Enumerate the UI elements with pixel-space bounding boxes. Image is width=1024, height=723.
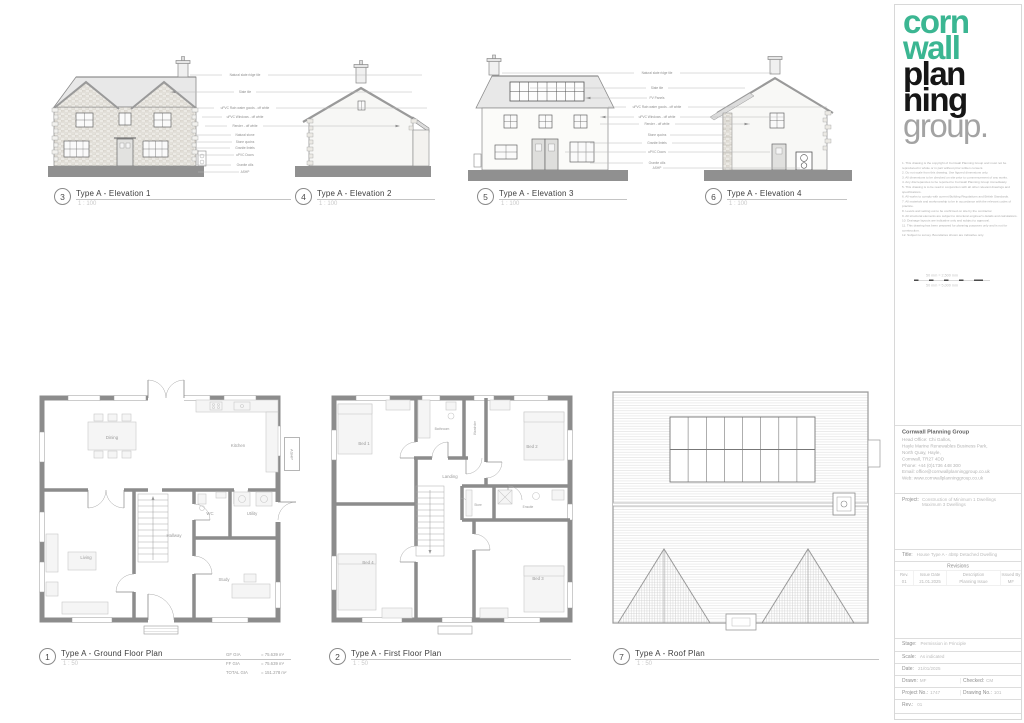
annotation-label: Stone quoins bbox=[648, 133, 667, 137]
elevation-annotations-right: Natural slate ridge tile Slate tile PV P… bbox=[500, 58, 900, 183]
scale-bar-text: 50 mm = 5,000 mm bbox=[904, 283, 980, 288]
roof-plan bbox=[604, 386, 889, 636]
annotation-label: Slate tile bbox=[239, 90, 251, 94]
area-value: = 75.639 m² bbox=[261, 652, 284, 657]
scale-value: As indicated bbox=[920, 654, 945, 660]
company-details: Cornwall Planning Group Head Office: Chi… bbox=[895, 425, 1021, 493]
room-label-utility: Utility bbox=[247, 511, 258, 516]
annotation-label: Stone quoins bbox=[236, 140, 255, 144]
logo-word: group. bbox=[903, 113, 1024, 139]
annotation-label: Natural slate ridge tile bbox=[230, 73, 261, 77]
annotation-label: Granite cills bbox=[649, 161, 666, 165]
callout-elevation-1: 3 Type A - Elevation 1 1 : 100 bbox=[54, 188, 291, 207]
chimney bbox=[487, 55, 501, 75]
room-label-hallway: Hallway bbox=[166, 533, 182, 538]
rev-value: 01 bbox=[917, 702, 922, 708]
annotation-label: uPVC Windows - off white bbox=[639, 115, 676, 119]
elevation-annotations-left: Natural slate ridge tile Slate tile uPVC… bbox=[150, 58, 480, 183]
callout-number: 4 bbox=[295, 188, 312, 205]
area-value: = 75.639 m² bbox=[261, 661, 284, 666]
room-label-landing: Landing bbox=[442, 474, 458, 479]
revisions-col-header: Issued By bbox=[1001, 571, 1021, 578]
callout-underline bbox=[351, 659, 571, 660]
stage-label: Stage: bbox=[902, 641, 916, 647]
revision-rev: 01 bbox=[895, 578, 914, 585]
chimney bbox=[833, 493, 855, 515]
note-line: 11. This drawing has been prepared for p… bbox=[902, 223, 1018, 233]
revisions-col-header: Issue Date bbox=[914, 571, 947, 578]
date-label: Date: bbox=[902, 666, 914, 672]
area-row: FF GIA = 75.639 m² bbox=[226, 661, 296, 666]
drawing-no-label: Drawing No.: bbox=[963, 690, 992, 696]
drawing-scale: 1 : 100 bbox=[727, 201, 847, 207]
callout-number: 6 bbox=[705, 188, 722, 205]
revisions-table: Revisions Rev. Issue Date Description Is… bbox=[895, 561, 1021, 638]
solar-array bbox=[670, 417, 815, 482]
utility-door bbox=[275, 502, 296, 522]
drawing-title: Type A - Elevation 2 bbox=[317, 189, 435, 198]
callout-roof-plan: 7 Type A - Roof Plan 1 : 50 bbox=[613, 648, 879, 667]
project-no-label: Project No.: bbox=[902, 690, 928, 696]
room-label-bed2: Bed 2 bbox=[526, 444, 538, 449]
bottom-divider bbox=[895, 713, 1021, 717]
revisions-col-header: Description bbox=[947, 571, 1001, 578]
scale-label: Scale: bbox=[902, 654, 916, 660]
room-label-store: Store bbox=[474, 503, 482, 507]
flue-projection bbox=[868, 440, 880, 467]
callout-number: 7 bbox=[613, 648, 630, 665]
project-drawing-no-row: Project No.: 1747 Drawing No.: 101 bbox=[895, 687, 1021, 699]
project-value: Maximum 3 Dwellings bbox=[922, 502, 996, 507]
drawing-sheet: { "callouts": [ {"num":"3","title":"Type… bbox=[0, 0, 1024, 723]
company-name: Cornwall Planning Group bbox=[902, 429, 1021, 435]
room-label-dining: Dining bbox=[106, 435, 119, 440]
area-label: GF GIA bbox=[226, 652, 261, 657]
drawing-scale: 1 : 100 bbox=[317, 201, 435, 207]
callout-elevation-4: 6 Type A - Elevation 4 1 : 100 bbox=[705, 188, 847, 207]
drawing-title: Type A - Elevation 1 bbox=[76, 189, 291, 198]
drawing-scale: 1 : 50 bbox=[351, 661, 571, 667]
address-line: Web: www.cornwallplanninggroup.co.uk bbox=[902, 475, 1021, 481]
annotation-label: Granite lintels bbox=[647, 141, 667, 145]
scale-bar-text: 50 mm = 2,500 mm bbox=[904, 273, 980, 278]
room-label-bed3: Bed 3 bbox=[532, 576, 544, 581]
callout-number: 2 bbox=[329, 648, 346, 665]
title-field: Title: House Type A - 4b8p Detached Dwel… bbox=[895, 549, 1021, 561]
ashp-label: ASHP bbox=[290, 449, 295, 460]
drawing-no-value: 101 bbox=[994, 690, 1002, 695]
callout-first-floor: 2 Type A - First Floor Plan 1 : 50 bbox=[329, 648, 571, 667]
date-value: 21/01/2025 bbox=[918, 666, 941, 672]
annotation-label: Granite cills bbox=[237, 163, 254, 167]
checked-value: CM bbox=[986, 678, 993, 683]
callout-elevation-2: 4 Type A - Elevation 2 1 : 100 bbox=[295, 188, 435, 207]
drawn-label: Drawn: bbox=[902, 678, 918, 684]
callout-underline bbox=[727, 199, 847, 200]
annotation-label: uPVC Doors bbox=[236, 153, 254, 157]
area-label: TOTAL GIA bbox=[226, 670, 261, 675]
drawing-scale: 1 : 100 bbox=[76, 201, 291, 207]
ground-floor-plan: Dining Kitchen Living Hallway WC Utility… bbox=[34, 386, 290, 636]
room-label-ensuite: Ensuite bbox=[523, 505, 534, 509]
room-label-bed4: Bed 4 bbox=[362, 560, 374, 565]
front-door bbox=[114, 138, 136, 169]
porch-roof bbox=[726, 614, 756, 630]
annotation-label: Granite lintels bbox=[235, 146, 255, 150]
room-label-wardrobe: Wardrobe bbox=[473, 421, 477, 435]
note-line: 12. Subject to survey. Boundaries shown … bbox=[902, 233, 1018, 238]
checked-label: Checked: bbox=[963, 678, 984, 684]
callout-underline bbox=[76, 199, 291, 200]
drawn-checked-row: Drawn: MF Checked: CM bbox=[895, 675, 1021, 687]
revision-by: MF bbox=[1001, 578, 1021, 585]
title-value: House Type A - 4b8p Detached Dwelling bbox=[917, 552, 997, 558]
revision-date: 21.01.2025 bbox=[914, 578, 947, 585]
area-label: FF GIA bbox=[226, 661, 261, 666]
patio-doors bbox=[148, 380, 184, 401]
area-value: = 151.278 m² bbox=[261, 670, 286, 675]
note-line: 7. All materials and workmanship to be i… bbox=[902, 199, 1018, 209]
callout-underline bbox=[317, 199, 435, 200]
checked-field: Checked: CM bbox=[960, 678, 1021, 684]
rev-label: Rev.: bbox=[902, 702, 913, 708]
scale-field: Scale: As indicated bbox=[895, 651, 1021, 663]
callout-elevation-3: 5 Type A - Elevation 3 1 : 100 bbox=[477, 188, 627, 207]
project-label: Project: bbox=[902, 497, 919, 507]
drawing-title: Type A - Elevation 4 bbox=[727, 189, 847, 198]
company-logo: corn wall plan ning group. bbox=[903, 9, 1024, 139]
revision-description: Planning Issue bbox=[947, 578, 1001, 585]
ashp-callout-box: ASHP bbox=[284, 437, 300, 471]
room-label-bed1: Bed 1 bbox=[358, 441, 370, 446]
date-field: Date: 21/01/2025 bbox=[895, 663, 1021, 675]
porch-roof bbox=[438, 626, 472, 634]
annotation-label: Render - off white bbox=[644, 122, 669, 126]
callout-number: 1 bbox=[39, 648, 56, 665]
area-row: TOTAL GIA = 151.278 m² bbox=[226, 670, 296, 675]
callout-underline bbox=[499, 199, 627, 200]
revisions-col-header: Rev. bbox=[895, 571, 914, 578]
title-block: corn wall plan ning group. 1. This drawi… bbox=[894, 4, 1022, 720]
room-label-bathroom: Bathroom bbox=[435, 427, 450, 431]
room-label-wc: WC bbox=[206, 511, 213, 516]
drawing-title: Type A - Roof Plan bbox=[635, 649, 879, 658]
drawing-title: Type A - First Floor Plan bbox=[351, 649, 571, 658]
annotation-label: uPVC Windows - off white bbox=[227, 115, 264, 119]
annotation-label: uPVC Doors bbox=[648, 150, 666, 154]
annotation-label: ASHP bbox=[241, 170, 250, 174]
scale-bar: 50 mm = 2,500 mm 50 mm = 5,000 mm bbox=[895, 273, 1021, 302]
callout-number: 3 bbox=[54, 188, 71, 205]
rev-field: Rev.: 01 bbox=[895, 699, 1021, 713]
project-no-field: Project No.: 1747 bbox=[902, 690, 960, 696]
annotation-label: Natural stone bbox=[236, 133, 255, 137]
revisions-header: Revisions bbox=[895, 562, 1021, 571]
annotation-label: uPVC Rain water goods - off white bbox=[221, 106, 270, 110]
project-no-value: 1747 bbox=[930, 690, 940, 695]
room-label-kitchen: Kitchen bbox=[231, 443, 246, 448]
first-floor-plan: Bed 1 Bathroom Wardrobe Bed 2 Landing St… bbox=[326, 386, 582, 636]
room-label-study: Study bbox=[219, 577, 231, 582]
drawing-title: Type A - Elevation 3 bbox=[499, 189, 627, 198]
stage-field: Stage: Permission in Principle bbox=[895, 638, 1021, 651]
area-schedule: GF GIA = 75.639 m² FF GIA = 75.639 m² TO… bbox=[226, 652, 296, 706]
callout-underline bbox=[635, 659, 879, 660]
note-line: 1. This drawing is the copyright of Corn… bbox=[902, 161, 1018, 171]
drawn-field: Drawn: MF bbox=[902, 678, 960, 684]
annotation-label: uPVC Rain water goods - off white bbox=[633, 105, 682, 109]
area-row: GF GIA = 75.639 m² bbox=[226, 652, 296, 657]
project-field: Project: Construction of Minimum 1 Dwell… bbox=[895, 493, 1021, 549]
annotation-label: ASHP bbox=[653, 166, 662, 170]
title-label: Title: bbox=[902, 552, 913, 558]
stage-value: Permission in Principle bbox=[920, 641, 966, 647]
drawing-no-field: Drawing No.: 101 bbox=[960, 690, 1021, 696]
drawing-scale: 1 : 50 bbox=[635, 661, 879, 667]
callout-number: 5 bbox=[477, 188, 494, 205]
drawn-value: MF bbox=[920, 678, 927, 683]
annotation-label: Slate tile bbox=[651, 86, 663, 90]
annotation-label: Natural slate ridge tile bbox=[642, 71, 673, 75]
drawing-scale: 1 : 100 bbox=[499, 201, 627, 207]
note-line: 5. This drawing is to be read in conjunc… bbox=[902, 185, 1018, 195]
room-label-living: Living bbox=[80, 555, 92, 560]
annotation-label: Render - off white bbox=[232, 124, 257, 128]
annotation-label: PV Panels bbox=[650, 96, 665, 100]
